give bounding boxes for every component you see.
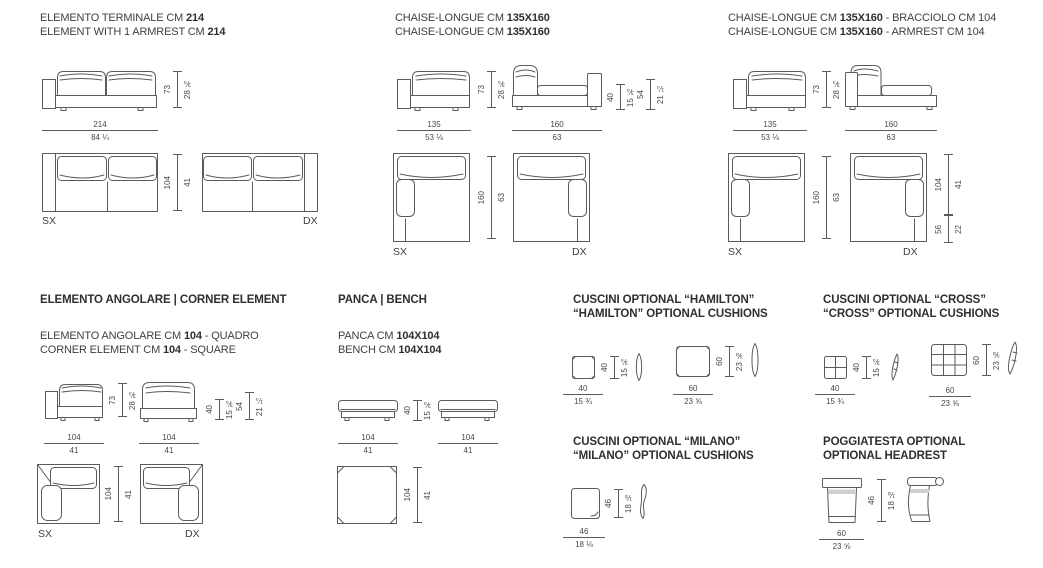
dim-line xyxy=(944,154,953,215)
dim-line xyxy=(610,356,619,379)
dim-in: 15 ¾ xyxy=(826,397,844,406)
dim-cm: 40 xyxy=(606,93,615,102)
corner-dx-label: DX xyxy=(185,529,200,540)
title-bold: 135X160 xyxy=(507,12,550,24)
dim-line xyxy=(815,394,855,395)
dim-line xyxy=(139,443,199,444)
dim-line xyxy=(413,400,422,421)
dim-in: 21 ¼ xyxy=(656,84,665,104)
terminal-depth-dim: 104 41 xyxy=(163,154,192,211)
milano-cushion-drawing xyxy=(571,488,600,519)
dim-line xyxy=(944,215,953,243)
terminal-side-view-drawing xyxy=(42,66,158,113)
dim-line xyxy=(563,394,603,395)
cross-heading-line2: “CROSS” OPTIONAL CUSHIONS xyxy=(823,307,999,321)
dim-in: 53 ⅛ xyxy=(761,133,779,142)
chaise-arm-armrest-depth-dim: 56 22 xyxy=(934,215,963,243)
dim-line xyxy=(512,130,602,131)
corner-heading: ELEMENTO ANGOLARE | CORNER ELEMENT xyxy=(40,293,286,307)
corner-top-view-sx-drawing xyxy=(37,464,100,524)
dim-line xyxy=(438,443,498,444)
dim-cm: 40 xyxy=(403,406,412,415)
terminal-top-view-dx-drawing xyxy=(202,153,318,212)
dim-in: 18 ⅛ xyxy=(575,540,593,549)
dim-line xyxy=(487,156,496,239)
dim-in: 22 xyxy=(954,225,963,234)
terminal-sx-label: SX xyxy=(42,216,56,227)
chaise-top-view-dx-drawing xyxy=(513,153,590,242)
dim-cm: 54 xyxy=(636,90,645,99)
milano-dim-v: 46 18 ⅛ xyxy=(604,489,633,518)
corner-seat-height-dim: 40 15 ¾ xyxy=(205,399,234,420)
chaise-160-width-dim: 160 63 xyxy=(512,120,602,142)
bench-side-view-1-drawing xyxy=(338,399,398,422)
dim-cm: 104 xyxy=(934,178,943,191)
chaise-dx-label: DX xyxy=(572,247,587,258)
dim-in: 84 ¼ xyxy=(91,133,109,142)
dim-line xyxy=(413,467,422,523)
cross-large-dim-h: 60 23 ⅝ xyxy=(929,386,971,408)
chaise-135-width-dim: 135 53 ⅛ xyxy=(397,120,471,142)
chaise-title: CHAISE-LONGUE CM 135X160 CHAISE-LONGUE C… xyxy=(395,11,550,39)
hamilton-large-profile-drawing xyxy=(749,343,761,377)
milano-profile-drawing xyxy=(637,484,650,519)
dim-line xyxy=(397,130,471,131)
chaise-arm-160-side-view-drawing xyxy=(845,62,937,113)
dim-line xyxy=(118,383,127,417)
hamilton-small-dim-v: 40 15 ¾ xyxy=(600,356,629,379)
title-bold: 104X104 xyxy=(396,330,439,342)
corner-side-view-2-drawing xyxy=(140,379,197,423)
dim-in: 23 ⅝ xyxy=(941,399,959,408)
dim-line xyxy=(725,346,734,377)
dim-in: 15 ¾ xyxy=(620,357,629,377)
dim-cm: 73 xyxy=(812,85,821,94)
dim-cm: 135 xyxy=(763,120,776,129)
headrest-side-view-drawing xyxy=(901,475,945,525)
cross-large-dim-v: 60 23 ⅝ xyxy=(972,344,1001,376)
dim-cm: 104 xyxy=(361,433,374,442)
dim-line xyxy=(215,399,224,420)
title-text: CHAISE-LONGUE CM xyxy=(395,26,507,38)
title-text: - QUADRO xyxy=(202,330,259,342)
dim-line xyxy=(982,344,991,376)
chaise-arm-top-view-dx-drawing xyxy=(850,153,927,242)
dim-cm: 46 xyxy=(867,496,876,505)
dim-cm: 73 xyxy=(477,85,486,94)
hamilton-heading: CUSCINI OPTIONAL “HAMILTON” “HAMILTON” O… xyxy=(573,293,768,321)
chaise-arm-dx-label: DX xyxy=(903,247,918,258)
dim-in: 15 ¾ xyxy=(225,399,234,419)
headrest-height-dim: 46 18 ⅛ xyxy=(867,479,896,522)
dim-line xyxy=(44,443,104,444)
dim-in: 41 xyxy=(124,490,133,499)
dim-in: 23 ⅝ xyxy=(833,542,851,551)
title-bold: 104 xyxy=(163,344,181,356)
chaise-135-side-view-drawing xyxy=(397,66,471,113)
bench-subtitle-line2: BENCH CM 104X104 xyxy=(338,343,441,357)
dim-line xyxy=(487,71,496,108)
dim-in: 53 ⅛ xyxy=(425,133,443,142)
title-text: - SQUARE xyxy=(181,344,236,356)
bench-depth-dim: 104 41 xyxy=(403,467,432,523)
cross-small-dim-h: 40 15 ¾ xyxy=(815,384,855,406)
hamilton-large-cushion-drawing xyxy=(676,346,710,377)
chaise-arm-135-side-view-drawing xyxy=(733,66,807,113)
dim-cm: 40 xyxy=(831,384,840,393)
dim-in: 41 xyxy=(183,178,192,187)
dim-in: 15 ¾ xyxy=(423,400,432,420)
title-text: CHAISE-LONGUE CM xyxy=(728,26,840,38)
dim-in: 28 ¾ xyxy=(183,79,192,99)
dim-in: 41 xyxy=(423,491,432,500)
milano-heading-line2: “MILANO” OPTIONAL CUSHIONS xyxy=(573,449,754,463)
cross-large-cushion-drawing xyxy=(931,344,967,376)
title-text: CORNER ELEMENT CM xyxy=(40,344,163,356)
milano-dim-h: 46 18 ⅛ xyxy=(563,527,605,549)
title-bold: 135X160 xyxy=(840,26,883,38)
title-text: BENCH CM xyxy=(338,344,398,356)
dim-cm: 104 xyxy=(461,433,474,442)
chaise-arm-title-line2: CHAISE-LONGUE CM 135X160 - ARMREST CM 10… xyxy=(728,25,996,39)
corner-top-view-dx-drawing xyxy=(140,464,203,524)
terminal-top-view-sx-drawing xyxy=(42,153,158,212)
chaise-arm-title: CHAISE-LONGUE CM 135X160 - BRACCIOLO CM … xyxy=(728,11,996,39)
title-bold: 135X160 xyxy=(507,26,550,38)
dim-in: 41 xyxy=(954,180,963,189)
terminal-title-line1: ELEMENTO TERMINALE CM 214 xyxy=(40,11,225,25)
corner-sx-label: SX xyxy=(38,529,52,540)
corner-width-dim-1: 104 41 xyxy=(44,433,104,455)
title-text: CHAISE-LONGUE CM xyxy=(395,12,507,24)
corner-depth-dim: 104 41 xyxy=(104,466,133,522)
dim-cm: 40 xyxy=(600,363,609,372)
dim-cm: 73 xyxy=(108,396,117,405)
bench-width-dim-1: 104 41 xyxy=(338,433,398,455)
terminal-height-dim: 73 28 ¾ xyxy=(163,71,192,108)
bench-subtitle: PANCA CM 104X104 BENCH CM 104X104 xyxy=(338,329,441,357)
terminal-dx-label: DX xyxy=(303,216,318,227)
dim-line xyxy=(733,130,807,131)
dim-cm: 214 xyxy=(93,120,106,129)
headrest-width-dim: 60 23 ⅝ xyxy=(819,529,864,551)
chaise-depth-dim: 160 63 xyxy=(477,156,506,239)
dim-line xyxy=(819,539,864,540)
dim-line xyxy=(616,84,625,110)
terminal-title-line2: ELEMENT WITH 1 ARMREST CM 214 xyxy=(40,25,225,39)
title-text: ELEMENT WITH 1 ARMREST CM xyxy=(40,26,207,38)
dim-line xyxy=(646,79,655,110)
hamilton-heading-line1: CUSCINI OPTIONAL “HAMILTON” xyxy=(573,293,768,307)
dim-cm: 60 xyxy=(715,357,724,366)
headrest-heading-line2: OPTIONAL HEADREST xyxy=(823,449,965,463)
dim-in: 63 xyxy=(497,193,506,202)
corner-back-height-dim: 54 21 ¼ xyxy=(235,392,264,420)
chaise-seat-height-dim: 40 15 ¾ xyxy=(606,84,635,110)
dim-cm: 60 xyxy=(837,529,846,538)
dim-cm: 40 xyxy=(579,384,588,393)
title-bold: 135X160 xyxy=(840,12,883,24)
milano-heading-line1: CUSCINI OPTIONAL “MILANO” xyxy=(573,435,754,449)
hamilton-large-dim-h: 60 23 ⅝ xyxy=(673,384,713,406)
dim-cm: 104 xyxy=(67,433,80,442)
terminal-width-dim: 214 84 ¼ xyxy=(42,120,158,142)
dim-cm: 104 xyxy=(163,176,172,189)
dim-cm: 104 xyxy=(403,488,412,501)
hamilton-large-dim-v: 60 23 ⅝ xyxy=(715,346,744,377)
dim-in: 15 ¾ xyxy=(574,397,592,406)
dim-cm: 60 xyxy=(946,386,955,395)
dim-in: 41 xyxy=(165,446,174,455)
dim-line xyxy=(845,130,937,131)
cross-heading-line1: CUSCINI OPTIONAL “CROSS” xyxy=(823,293,999,307)
title-bold: 214 xyxy=(186,12,204,24)
chaise-arm-title-line1: CHAISE-LONGUE CM 135X160 - BRACCIOLO CM … xyxy=(728,11,996,25)
chaise-title-line2: CHAISE-LONGUE CM 135X160 xyxy=(395,25,550,39)
dim-line xyxy=(563,537,605,538)
dim-cm: 135 xyxy=(427,120,440,129)
chaise-arm-depth-dim: 160 63 xyxy=(812,156,841,239)
chaise-160-side-view-drawing xyxy=(512,62,602,113)
dim-cm: 104 xyxy=(162,433,175,442)
dim-in: 18 ⅛ xyxy=(624,493,633,513)
bench-top-view-drawing xyxy=(337,466,397,524)
dim-cm: 160 xyxy=(812,191,821,204)
dim-cm: 56 xyxy=(934,225,943,234)
dim-in: 63 xyxy=(832,193,841,202)
corner-subtitle-line1: ELEMENTO ANGOLARE CM 104 - QUADRO xyxy=(40,329,259,343)
cross-small-dim-v: 40 15 ¾ xyxy=(852,356,881,379)
title-text: CHAISE-LONGUE CM xyxy=(728,12,840,24)
dim-cm: 40 xyxy=(205,405,214,414)
headrest-heading-line1: POGGIATESTA OPTIONAL xyxy=(823,435,965,449)
dim-line xyxy=(338,443,398,444)
title-text: ELEMENTO ANGOLARE CM xyxy=(40,330,184,342)
title-bold: 104X104 xyxy=(398,344,441,356)
milano-heading: CUSCINI OPTIONAL “MILANO” “MILANO” OPTIO… xyxy=(573,435,754,463)
dim-line xyxy=(614,489,623,518)
dim-cm: 73 xyxy=(163,85,172,94)
dim-cm: 40 xyxy=(852,363,861,372)
dim-line xyxy=(173,71,182,108)
bench-height-dim: 40 15 ¾ xyxy=(403,400,432,421)
dim-line xyxy=(42,130,158,131)
dim-cm: 54 xyxy=(235,402,244,411)
dim-in: 63 xyxy=(887,133,896,142)
hamilton-small-dim-h: 40 15 ¾ xyxy=(563,384,603,406)
corner-subtitle: ELEMENTO ANGOLARE CM 104 - QUADRO CORNER… xyxy=(40,329,259,357)
dim-line xyxy=(245,392,254,420)
dim-in: 15 ¾ xyxy=(626,87,635,107)
dim-cm: 46 xyxy=(604,499,613,508)
dim-line xyxy=(929,396,971,397)
headrest-front-view-drawing xyxy=(822,478,862,523)
dim-line xyxy=(822,71,831,108)
furniture-spec-sheet: ELEMENTO TERMINALE CM 214 ELEMENT WITH 1… xyxy=(0,0,1043,568)
dim-cm: 60 xyxy=(689,384,698,393)
dim-in: 28 ¾ xyxy=(128,390,137,410)
dim-in: 18 ⅛ xyxy=(887,490,896,510)
chaise-top-view-sx-drawing xyxy=(393,153,470,242)
hamilton-small-cushion-drawing xyxy=(572,356,595,379)
bench-heading: PANCA | BENCH xyxy=(338,293,427,307)
cross-small-profile-drawing xyxy=(886,352,902,382)
bench-side-view-2-drawing xyxy=(438,399,498,422)
chaise-arm-sx-label: SX xyxy=(728,247,742,258)
title-text: ELEMENTO TERMINALE CM xyxy=(40,12,186,24)
dim-cm: 160 xyxy=(550,120,563,129)
chaise-arm-height-dim: 73 28 ¾ xyxy=(812,71,841,108)
chaise-sx-label: SX xyxy=(393,247,407,258)
headrest-heading: POGGIATESTA OPTIONAL OPTIONAL HEADREST xyxy=(823,435,965,463)
title-bold: 104 xyxy=(184,330,202,342)
dim-cm: 104 xyxy=(104,487,113,500)
dim-line xyxy=(114,466,123,522)
chaise-arm-160-width-dim: 160 63 xyxy=(845,120,937,142)
chaise-height-dim: 73 28 ¾ xyxy=(477,71,506,108)
dim-in: 41 xyxy=(70,446,79,455)
dim-line xyxy=(877,479,886,522)
corner-height-dim: 73 28 ¾ xyxy=(108,383,137,417)
chaise-arm-135-width-dim: 135 53 ⅛ xyxy=(733,120,807,142)
dim-line xyxy=(173,154,182,211)
title-bold: 214 xyxy=(207,26,225,38)
hamilton-heading-line2: “HAMILTON” OPTIONAL CUSHIONS xyxy=(573,307,768,321)
corner-width-dim-2: 104 41 xyxy=(139,433,199,455)
dim-in: 41 xyxy=(464,446,473,455)
dim-cm: 160 xyxy=(884,120,897,129)
bench-subtitle-line1: PANCA CM 104X104 xyxy=(338,329,441,343)
corner-side-view-1-drawing xyxy=(45,379,103,423)
cross-large-profile-drawing xyxy=(1003,340,1021,376)
title-text: PANCA CM xyxy=(338,330,396,342)
cross-heading: CUSCINI OPTIONAL “CROSS” “CROSS” OPTIONA… xyxy=(823,293,999,321)
dim-in: 28 ¾ xyxy=(832,79,841,99)
hamilton-small-profile-drawing xyxy=(634,353,644,381)
dim-in: 21 ¼ xyxy=(255,396,264,416)
dim-in: 28 ¾ xyxy=(497,79,506,99)
dim-in: 63 xyxy=(553,133,562,142)
chaise-arm-top-view-sx-drawing xyxy=(728,153,805,242)
terminal-title: ELEMENTO TERMINALE CM 214 ELEMENT WITH 1… xyxy=(40,11,225,39)
dim-in: 23 ⅝ xyxy=(992,350,1001,370)
title-text: - ARMREST CM 104 xyxy=(883,26,985,38)
dim-cm: 60 xyxy=(972,356,981,365)
dim-in: 41 xyxy=(364,446,373,455)
dim-line xyxy=(862,356,871,379)
dim-cm: 46 xyxy=(580,527,589,536)
chaise-arm-height-dim: 54 21 ¼ xyxy=(636,79,665,110)
chaise-arm-chaise-depth-dim: 104 41 xyxy=(934,154,963,215)
dim-cm: 160 xyxy=(477,191,486,204)
bench-width-dim-2: 104 41 xyxy=(438,433,498,455)
dim-line xyxy=(673,394,713,395)
dim-in: 15 ¾ xyxy=(872,357,881,377)
cross-small-cushion-drawing xyxy=(824,356,847,379)
dim-line xyxy=(822,156,831,239)
chaise-title-line1: CHAISE-LONGUE CM 135X160 xyxy=(395,11,550,25)
title-text: - BRACCIOLO CM 104 xyxy=(883,12,996,24)
dim-in: 23 ⅝ xyxy=(684,397,702,406)
corner-subtitle-line2: CORNER ELEMENT CM 104 - SQUARE xyxy=(40,343,259,357)
dim-in: 23 ⅝ xyxy=(735,351,744,371)
